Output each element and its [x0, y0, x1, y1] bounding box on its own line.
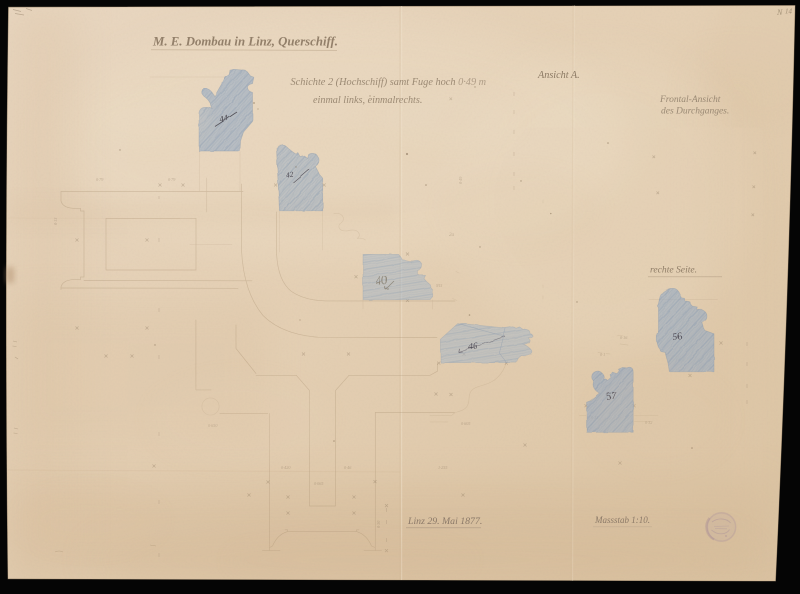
svg-text:Ansicht A.: Ansicht A.: [537, 70, 580, 81]
svg-text:Frontal-Ansicht: Frontal-Ansicht: [659, 95, 721, 105]
svg-text:M. E. Dombau in Linz, Querschi: M. E. Dombau in Linz, Querschiff.: [152, 35, 338, 49]
svg-text:einmal links, einmalrechts.: einmal links, einmalrechts.: [313, 95, 422, 106]
svg-text:Linz 29. Mai 1877.: Linz 29. Mai 1877.: [407, 516, 482, 527]
svg-text:rechte Seite.: rechte Seite.: [650, 265, 697, 276]
svg-text:Massstab 1:10.: Massstab 1:10.: [594, 515, 650, 525]
svg-text:Schichte 2 (Hochschiff) samt F: Schichte 2 (Hochschiff) samt Fuge hoch 0…: [291, 77, 487, 88]
svg-text:des Durchganges.: des Durchganges.: [661, 107, 729, 117]
